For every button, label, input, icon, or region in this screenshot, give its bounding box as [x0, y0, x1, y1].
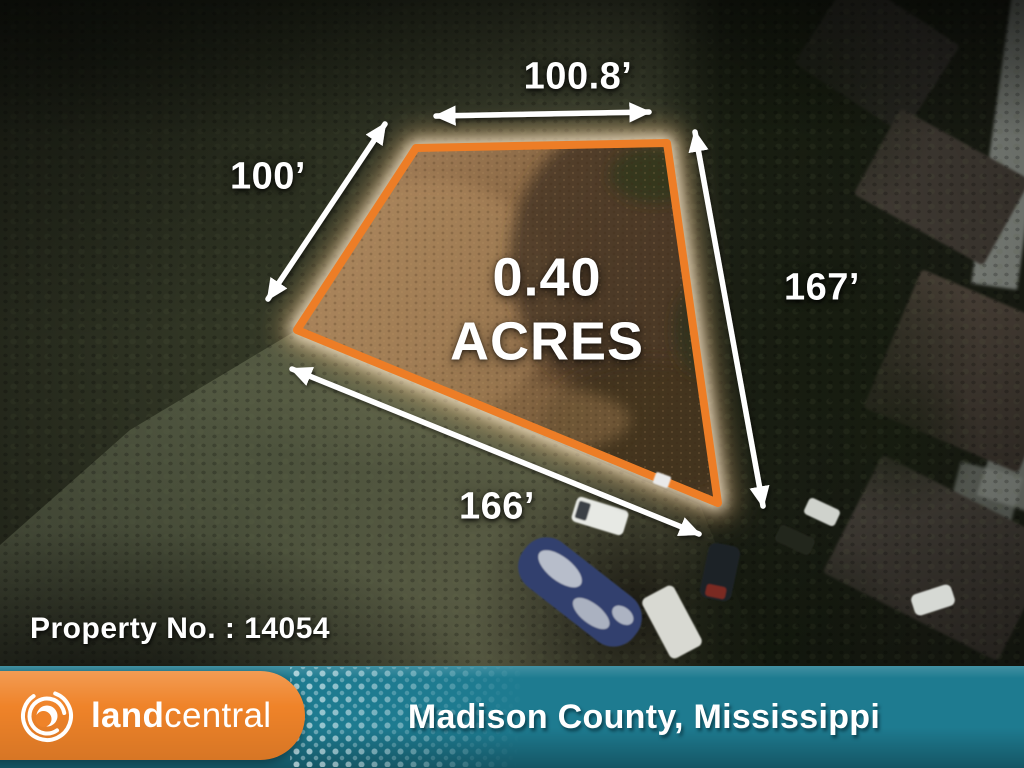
- footer-bar: Madison County, Mississippi landcentral: [0, 666, 1024, 768]
- acreage-unit: ACRES: [450, 310, 644, 374]
- property-listing-image: 100.8’ 100’ 167’ 166’ 0.40 ACRES Propert…: [0, 0, 1024, 768]
- dimension-label-right: 167’: [784, 267, 860, 310]
- brand-wordmark: landcentral: [91, 696, 271, 736]
- dimension-label-bottom: 166’: [459, 486, 535, 529]
- brand-pill: landcentral: [0, 671, 305, 760]
- location-label: Madison County, Mississippi: [300, 666, 1024, 768]
- property-number-label: Property No. : 14054: [30, 612, 330, 646]
- dimension-arrow-top: [436, 112, 649, 116]
- dimension-label-left: 100’: [230, 156, 306, 199]
- dimension-label-top: 100.8’: [524, 56, 633, 99]
- acreage-label: 0.40 ACRES: [450, 246, 644, 373]
- acreage-value: 0.40: [450, 246, 644, 310]
- brand-word-land: land: [91, 696, 164, 735]
- brand-word-central: central: [164, 696, 271, 735]
- landcentral-swirl-icon: [18, 687, 76, 745]
- lot-overlay: [0, 0, 1024, 768]
